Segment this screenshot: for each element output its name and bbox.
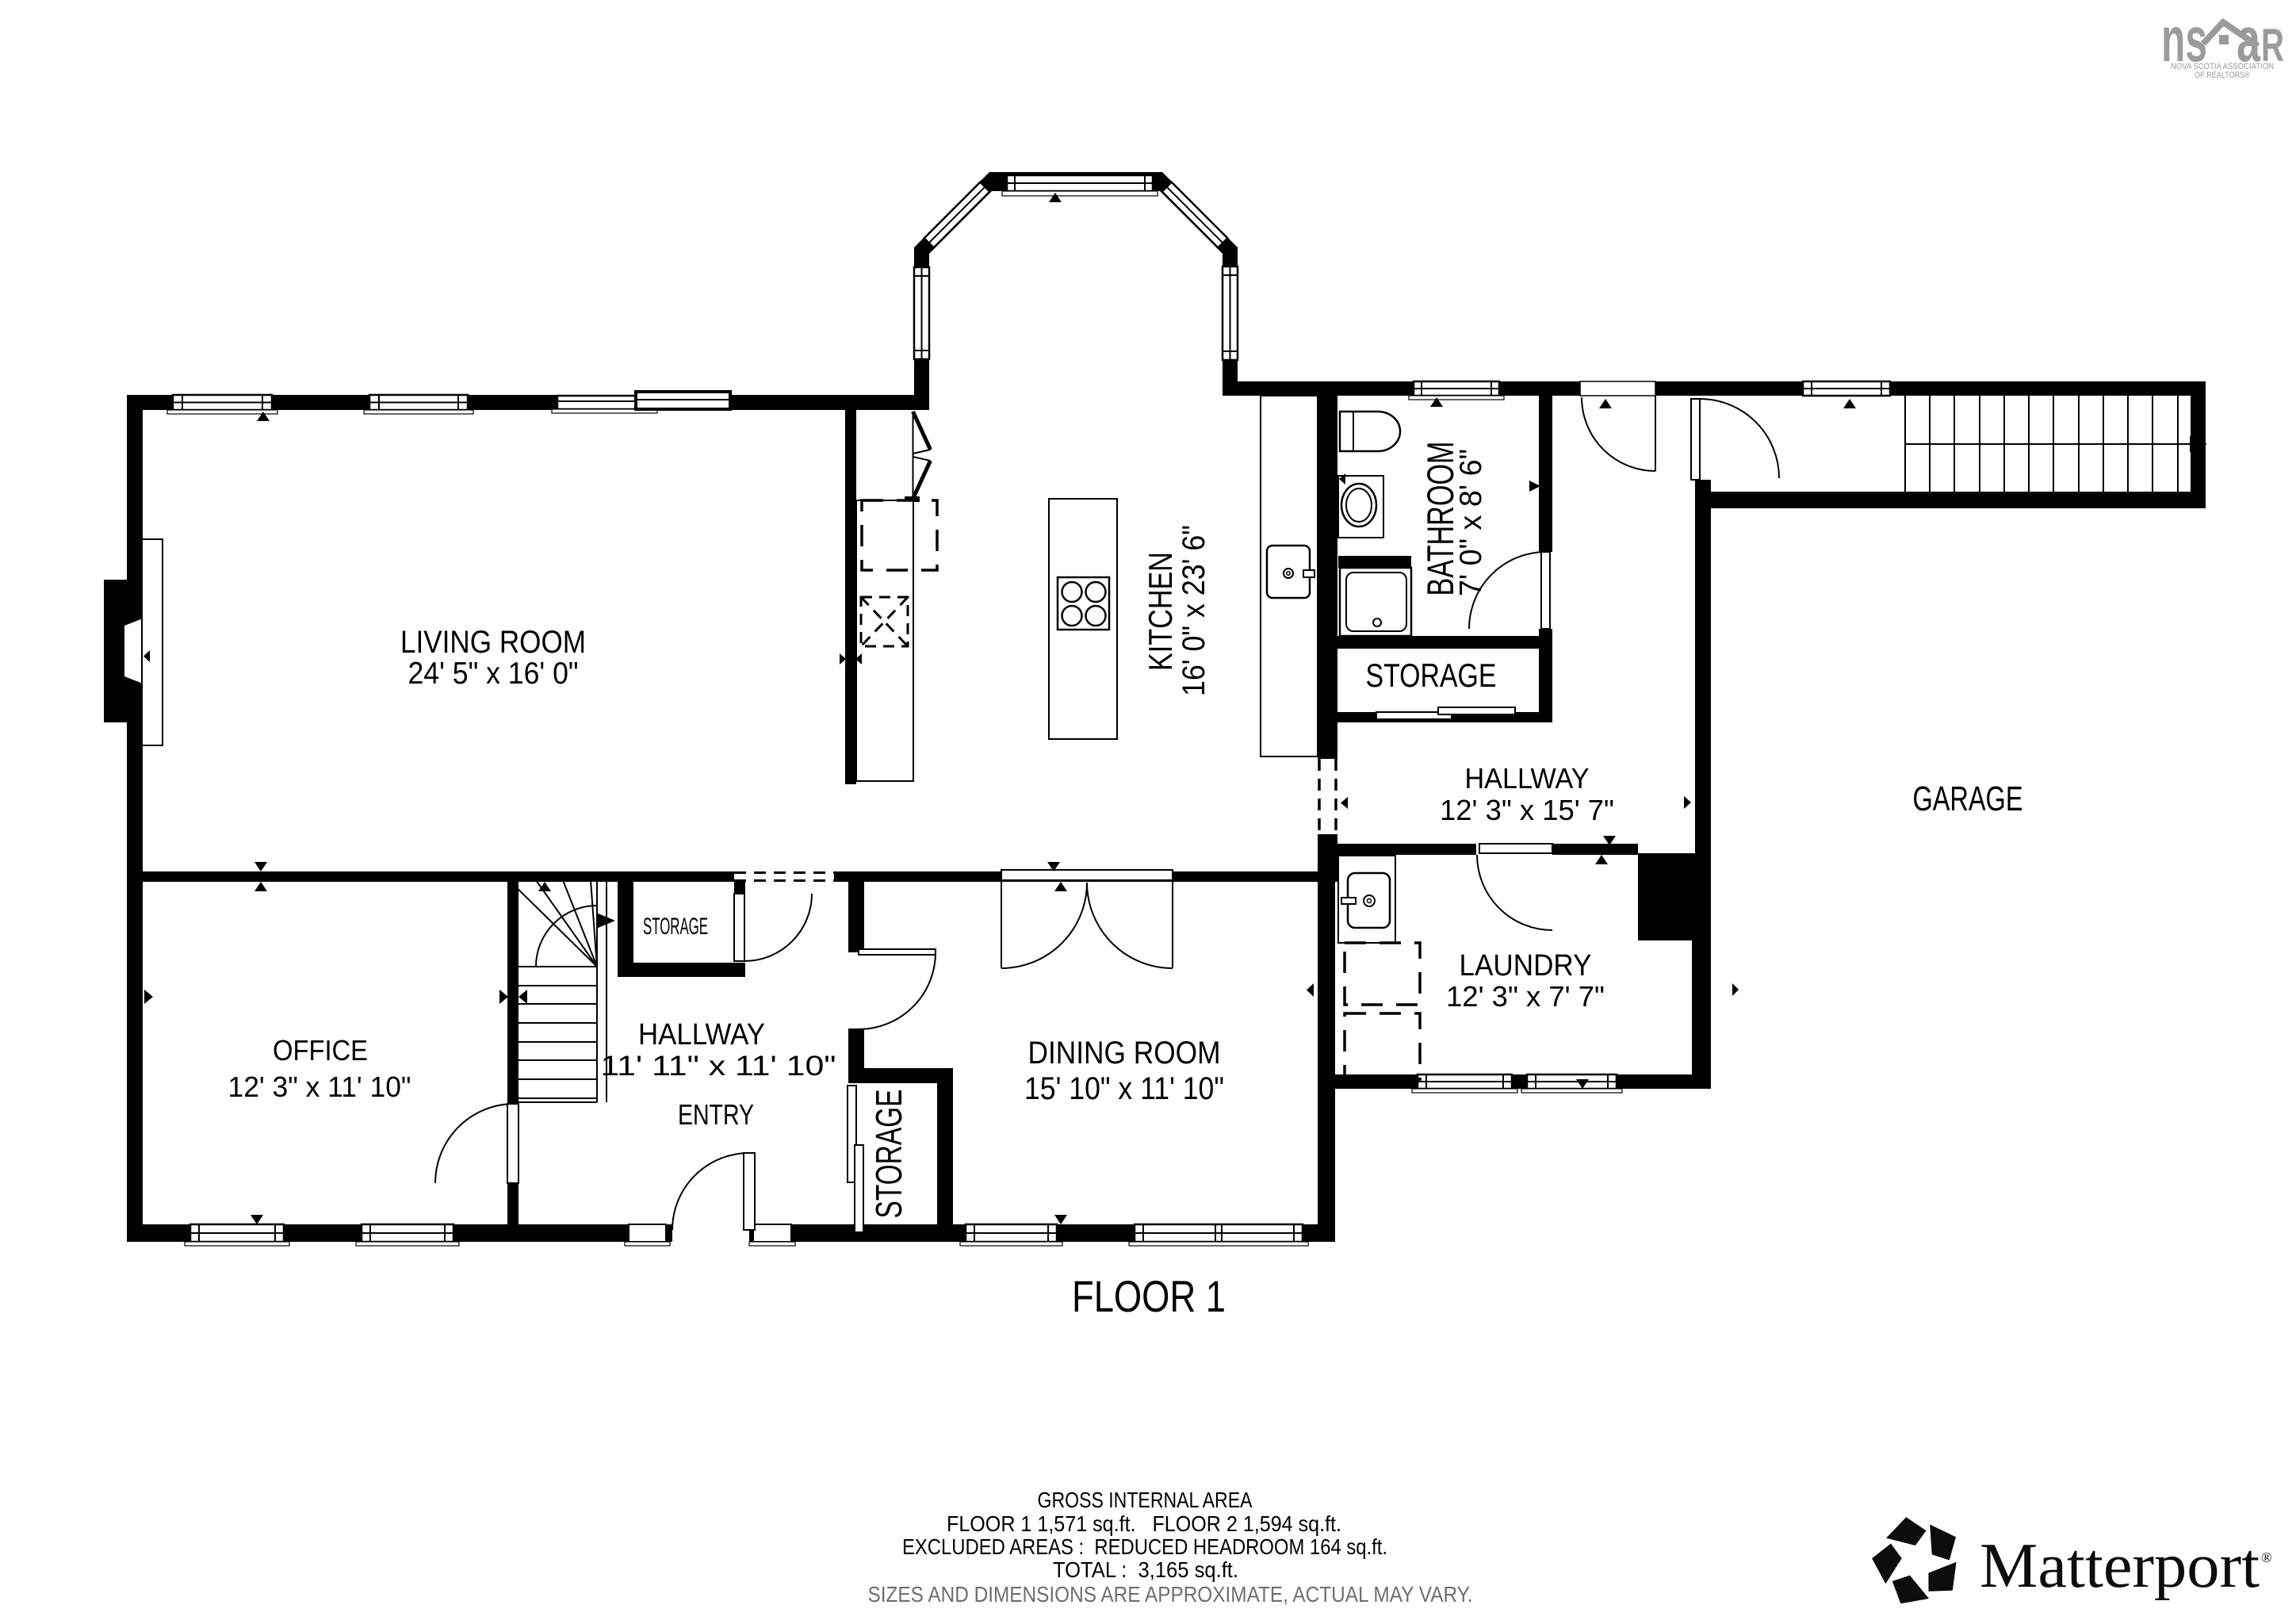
svg-text:FLOOR 1 1,571 sq.ft. FLOOR 2: FLOOR 1 1,571 sq.ft. FLOOR 2 1,594 sq.ft… [947, 1511, 1341, 1536]
svg-text:16' 0" x 23' 6": 16' 0" x 23' 6" [1177, 525, 1211, 696]
svg-text:STORAGE: STORAGE [1366, 657, 1497, 694]
svg-text:EXCLUDED AREAS : REDUCED HEAD: EXCLUDED AREAS : REDUCED HEADROOM 164 sq… [902, 1534, 1387, 1559]
svg-text:12' 3" x 15' 7": 12' 3" x 15' 7" [1440, 794, 1614, 826]
svg-text:ENTRY: ENTRY [678, 1098, 754, 1131]
svg-text:12' 3" x 11' 10": 12' 3" x 11' 10" [228, 1071, 411, 1103]
svg-text:Matterport: Matterport [1980, 1531, 2260, 1601]
svg-text:®: ® [2261, 1549, 2272, 1565]
svg-text:12' 3" x 7' 7": 12' 3" x 7' 7" [1446, 980, 1605, 1013]
svg-text:TOTAL : 3,165 sq.ft.: TOTAL : 3,165 sq.ft. [1053, 1557, 1238, 1582]
svg-text:FLOOR 1: FLOOR 1 [1072, 1271, 1226, 1321]
svg-text:OFFICE: OFFICE [273, 1034, 368, 1067]
svg-text:HALLWAY: HALLWAY [1465, 762, 1590, 795]
svg-text:GARAGE: GARAGE [1913, 779, 2023, 818]
svg-text:SIZES AND DIMENSIONS ARE APPRO: SIZES AND DIMENSIONS ARE APPROXIMATE, AC… [868, 1582, 1473, 1607]
svg-text:LIVING ROOM: LIVING ROOM [400, 625, 586, 660]
svg-text:HALLWAY: HALLWAY [638, 1018, 765, 1051]
svg-text:STORAGE: STORAGE [868, 1090, 909, 1219]
svg-text:LAUNDRY: LAUNDRY [1460, 949, 1592, 982]
svg-text:24' 5" x 16' 0": 24' 5" x 16' 0" [408, 657, 579, 691]
svg-text:OF REALTORS®: OF REALTORS® [2195, 71, 2250, 80]
svg-text:DINING ROOM: DINING ROOM [1028, 1036, 1221, 1071]
svg-text:15' 10" x 11' 10": 15' 10" x 11' 10" [1024, 1071, 1224, 1106]
svg-text:STORAGE: STORAGE [643, 913, 708, 940]
svg-text:GROSS INTERNAL AREA: GROSS INTERNAL AREA [1038, 1488, 1253, 1512]
svg-text:KITCHEN: KITCHEN [1142, 552, 1179, 671]
svg-text:11' 11" x 11' 10": 11' 11" x 11' 10" [601, 1051, 836, 1082]
svg-text:7' 0" x 8' 6": 7' 0" x 8' 6" [1454, 449, 1488, 596]
